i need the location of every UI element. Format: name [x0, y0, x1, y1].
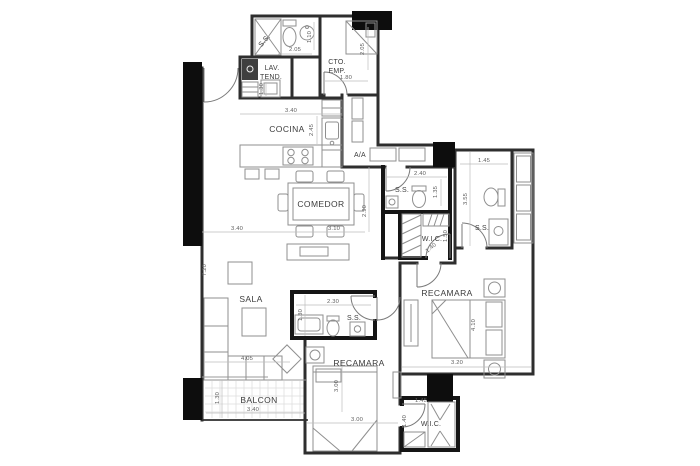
label-cocina: COCINA: [269, 124, 304, 134]
lamp-icon: [489, 282, 501, 294]
hall-closet: [370, 148, 396, 161]
stool: [265, 169, 279, 179]
label-ss-master: S.S.: [475, 225, 489, 232]
chair: [278, 194, 288, 211]
label-balcon: BALCON: [240, 395, 277, 405]
label-wic-lower: W.I.C.: [421, 421, 441, 428]
chair: [296, 226, 313, 237]
floor-plan-page: S.S. LAV. TEND. CTO. EMP. COCINA A/A COM…: [0, 0, 700, 466]
dim-cocina-d: 2.45: [309, 124, 315, 136]
dim-master-ss-h: 3.55: [463, 193, 469, 205]
stove-icon: [283, 147, 313, 165]
dim-rec2-h: 3.00: [334, 380, 340, 392]
coffee-table: [242, 308, 266, 336]
lamp-icon: [310, 350, 320, 360]
toilet-icon: [413, 191, 426, 208]
label-ss-middle: S.S.: [347, 315, 361, 322]
dim-cto-h: 2.05: [360, 43, 366, 55]
dim-sala-l: 4.05: [241, 356, 253, 362]
dim-wic-lower-door: 1.45: [415, 398, 427, 404]
dim-hall-ss-w: 2.40: [414, 171, 426, 177]
dim-rec2-w: 3.00: [351, 417, 363, 423]
washer-icon: [242, 59, 258, 80]
column-left: [183, 62, 202, 246]
label-emp: EMP.: [328, 68, 345, 75]
sink-icon: [386, 196, 398, 208]
dim-master-w: 3.20: [451, 360, 463, 366]
chair: [327, 171, 344, 182]
dim-wic-upper-door: 1.40: [425, 242, 438, 254]
dim-wic-lower-d: 1.40: [402, 415, 408, 427]
stool: [245, 169, 259, 179]
bed: [432, 300, 505, 358]
dim-ss-top-d: 1.10: [307, 31, 313, 43]
master-bathroom-fixtures: [484, 153, 533, 245]
column-mid-right: [433, 142, 455, 167]
armchair: [228, 262, 252, 284]
label-aa: A/A: [354, 152, 366, 159]
dim-lav-d: 1.30: [259, 83, 265, 95]
master-bedroom-door: [417, 263, 441, 287]
kitchen-sink-icon: [326, 122, 339, 139]
dim-mid-ss-w: 2.30: [327, 299, 339, 305]
bedroom2-door: [377, 297, 400, 321]
dim-hall-ss-d: 1.35: [433, 186, 439, 198]
dim-comedor-h: 2.90: [362, 205, 368, 217]
sink-icon: [494, 227, 503, 236]
dim-comedor-w: 3.10: [328, 226, 340, 232]
sofa: [204, 298, 228, 380]
dim-sala-w: 3.40: [231, 226, 243, 232]
dim-ss-top-w: 2.05: [289, 47, 301, 53]
column-bottom-right: [427, 374, 453, 402]
dim-master-ss-w: 1.45: [478, 158, 490, 164]
dining-furniture: [278, 171, 364, 260]
label-wic-upper: W.I.C.: [422, 236, 442, 243]
pillow: [486, 302, 502, 327]
dim-cocina-w: 3.40: [285, 108, 297, 114]
label-comedor: COMEDOR: [297, 199, 344, 209]
console: [287, 244, 349, 260]
apartment-floor-plan: S.S. LAV. TEND. CTO. EMP. COCINA A/A COM…: [0, 0, 700, 466]
dim-mid-ss-d: 1.30: [298, 309, 304, 321]
dim-sala-h: 7.20: [202, 264, 208, 276]
dim-master-bed-l: 4.10: [471, 319, 477, 331]
dim-balcon-w: 3.40: [247, 407, 259, 413]
label-sala: SALA: [239, 294, 262, 304]
dim-cto-w: 1.80: [340, 75, 352, 81]
toilet-icon: [484, 188, 498, 206]
label-lav: LAV.: [265, 65, 280, 72]
label-tend: TEND.: [260, 74, 282, 81]
toilet-icon: [283, 28, 296, 47]
toilet-icon: [327, 320, 339, 336]
pillow: [486, 330, 502, 355]
column-bottom-left: [183, 378, 202, 420]
nightstand: [306, 347, 324, 363]
dim-balcon-d: 1.30: [215, 392, 221, 404]
vanity: [489, 219, 508, 245]
accent-chair: [273, 345, 301, 373]
label-recamara-2: RECAMARA: [333, 358, 384, 368]
bed: [313, 366, 377, 451]
entry-door: [204, 68, 238, 102]
label-ss-top: S.S.: [258, 33, 272, 48]
hall-closet: [399, 148, 425, 161]
dim-wic-upper-d: 1.50: [443, 230, 449, 242]
sink-icon: [350, 322, 365, 336]
chair: [296, 171, 313, 182]
label-cto: CTO.: [328, 59, 345, 66]
label-recamara-master: RECAMARA: [421, 288, 472, 298]
label-ss-hall: S.S.: [395, 187, 409, 194]
